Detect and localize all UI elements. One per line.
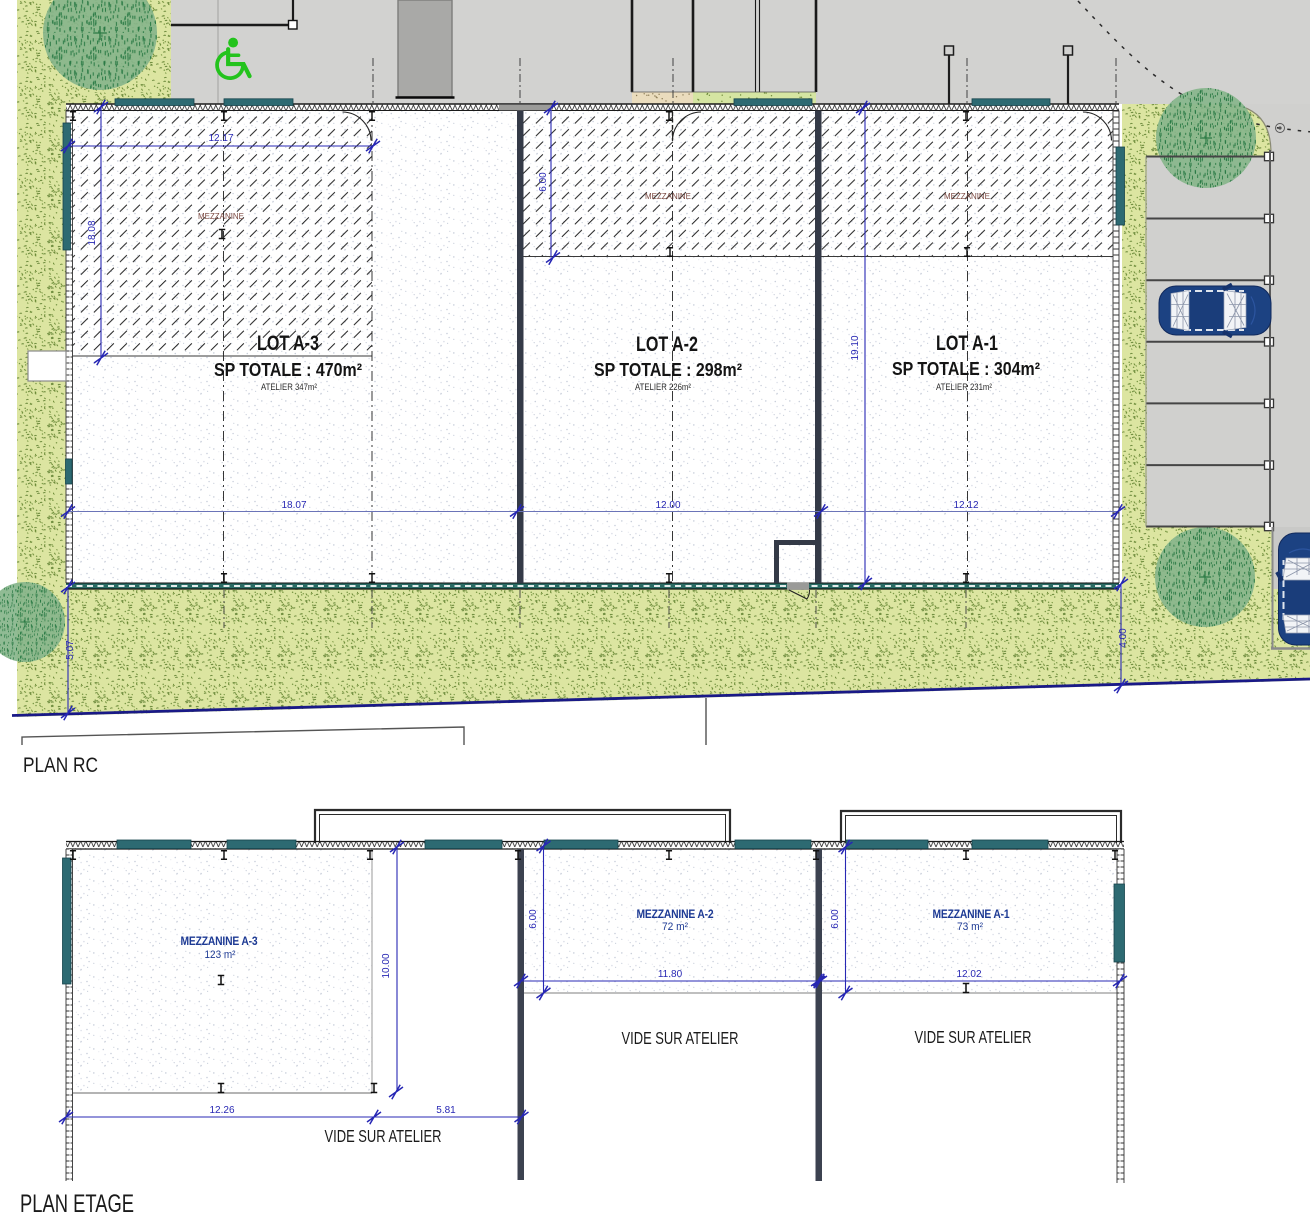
svg-text:ATELIER 226m²: ATELIER 226m² [635, 382, 691, 393]
svg-text:123 m²: 123 m² [205, 949, 236, 961]
svg-text:4.00: 4.00 [1118, 628, 1129, 648]
svg-text:SP TOTALE : 470m²: SP TOTALE : 470m² [214, 360, 362, 380]
svg-text:12.02: 12.02 [956, 969, 981, 980]
svg-text:VIDE SUR ATELIER: VIDE SUR ATELIER [915, 1027, 1032, 1047]
svg-text:6.00: 6.00 [528, 909, 539, 929]
svg-text:SP TOTALE : 298m²: SP TOTALE : 298m² [594, 360, 742, 380]
svg-text:19.10: 19.10 [850, 335, 861, 360]
svg-text:MEZZANINE A-1: MEZZANINE A-1 [933, 907, 1010, 921]
svg-text:10.00: 10.00 [381, 953, 392, 978]
svg-text:MEZZANINE: MEZZANINE [645, 191, 691, 201]
svg-text:12.26: 12.26 [209, 1105, 234, 1116]
svg-text:VIDE SUR ATELIER: VIDE SUR ATELIER [325, 1126, 442, 1146]
svg-text:72 m²: 72 m² [662, 921, 688, 933]
svg-text:73 m²: 73 m² [957, 921, 983, 933]
svg-text:VIDE SUR ATELIER: VIDE SUR ATELIER [622, 1028, 739, 1048]
svg-text:18.08: 18.08 [87, 220, 98, 245]
svg-text:6.00: 6.00 [538, 172, 549, 192]
svg-text:5.81: 5.81 [436, 1105, 456, 1116]
svg-text:PLAN ETAGE: PLAN ETAGE [20, 1190, 134, 1218]
svg-text:MEZZANINE A-3: MEZZANINE A-3 [181, 934, 258, 948]
svg-text:MEZZANINE A-2: MEZZANINE A-2 [637, 907, 714, 921]
svg-text:LOT A-2: LOT A-2 [636, 333, 698, 356]
svg-text:LOT A-1: LOT A-1 [936, 332, 998, 355]
svg-text:12.17: 12.17 [208, 133, 233, 144]
svg-text:12.12: 12.12 [953, 500, 978, 511]
svg-text:11.80: 11.80 [658, 969, 683, 980]
svg-text:18.07: 18.07 [281, 500, 306, 511]
svg-text:6.00: 6.00 [830, 909, 841, 929]
svg-text:ATELIER 347m²: ATELIER 347m² [261, 382, 317, 393]
svg-text:12.00: 12.00 [655, 500, 680, 511]
svg-text:MEZZANINE: MEZZANINE [944, 191, 990, 201]
svg-text:5.07: 5.07 [65, 640, 76, 660]
svg-text:ATELIER 231m²: ATELIER 231m² [936, 382, 992, 393]
svg-text:PLAN RC: PLAN RC [23, 754, 98, 777]
svg-text:LOT A-3: LOT A-3 [257, 332, 319, 355]
svg-text:SP TOTALE : 304m²: SP TOTALE : 304m² [892, 359, 1040, 379]
svg-text:MEZZANINE: MEZZANINE [198, 211, 244, 221]
